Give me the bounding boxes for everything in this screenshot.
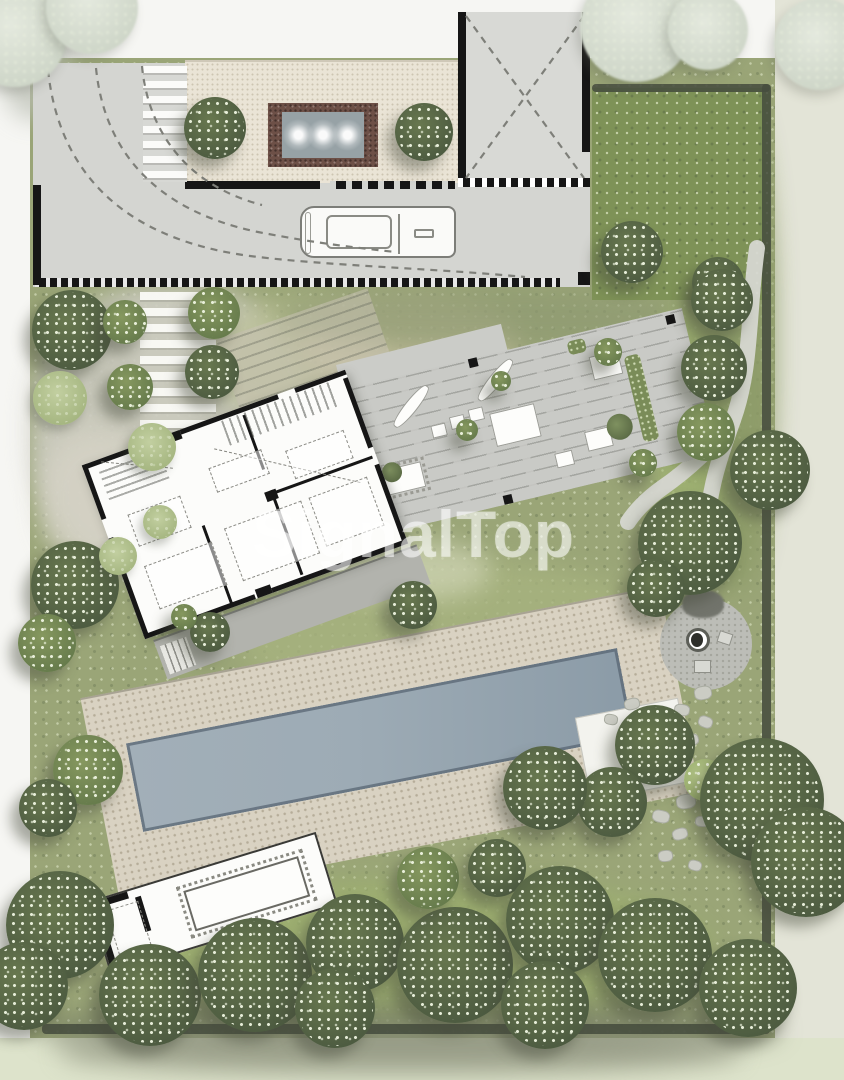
garage bbox=[458, 12, 590, 183]
furniture-outline bbox=[127, 496, 191, 547]
hedge-right bbox=[762, 84, 771, 1032]
reflecting-pool-lights bbox=[282, 112, 364, 158]
car-windshield-line bbox=[398, 214, 400, 254]
sun-lounger bbox=[474, 356, 517, 405]
fire-pit-icon bbox=[686, 628, 710, 652]
car-cabin bbox=[326, 215, 392, 249]
pergola-post bbox=[687, 372, 698, 383]
court-gate-wall bbox=[35, 278, 560, 287]
deck-chair bbox=[554, 450, 575, 469]
hedge-bottom bbox=[42, 1024, 770, 1034]
deck-chair bbox=[449, 414, 467, 430]
deck-chair bbox=[468, 406, 486, 422]
patio-seat bbox=[716, 630, 733, 646]
furniture-outline bbox=[144, 542, 227, 610]
right-margin-strip bbox=[775, 0, 844, 1080]
pergola-post bbox=[468, 357, 479, 368]
water-feature bbox=[268, 103, 378, 167]
court-wall-left bbox=[33, 185, 41, 285]
patio-seat bbox=[694, 660, 711, 673]
sun-lounger bbox=[390, 382, 433, 431]
garage-door bbox=[458, 178, 590, 187]
garage-wall-right bbox=[582, 12, 590, 152]
pergola-post bbox=[665, 314, 676, 325]
furniture-outline bbox=[208, 449, 270, 493]
pergola-post bbox=[693, 439, 704, 450]
tree bbox=[46, 0, 138, 54]
deck-table bbox=[489, 403, 542, 447]
deck-table bbox=[589, 350, 624, 380]
entry-steps bbox=[143, 66, 187, 182]
site-plan-canvas: SignalTop bbox=[0, 0, 844, 1080]
bottom-margin-strip bbox=[0, 1038, 844, 1080]
wall-corner bbox=[578, 272, 590, 285]
car-bumper bbox=[305, 212, 311, 254]
court-wall-top bbox=[185, 181, 320, 189]
hedge-top bbox=[592, 84, 770, 92]
garage-wall-left bbox=[458, 12, 466, 183]
fire-pit-patio bbox=[660, 598, 752, 690]
court-wall-top-dashed bbox=[330, 181, 455, 189]
car bbox=[300, 206, 456, 258]
lawn-top-right bbox=[592, 88, 770, 300]
deck-chair bbox=[430, 422, 448, 438]
boulder bbox=[682, 590, 724, 618]
planter bbox=[566, 338, 587, 356]
terrace-steps bbox=[160, 637, 197, 675]
watermark-text: SignalTop bbox=[252, 496, 575, 572]
car-detail bbox=[414, 229, 434, 238]
